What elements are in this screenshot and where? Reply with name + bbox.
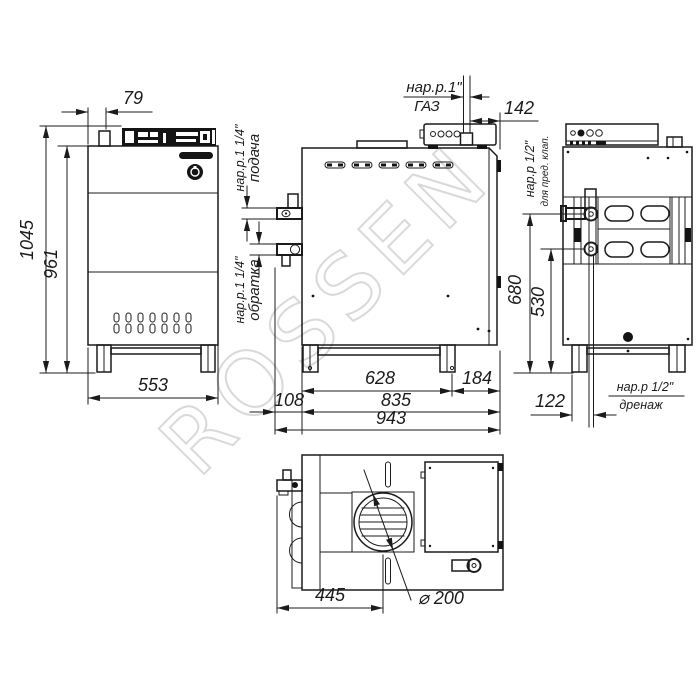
dim-supply-connection: нар.р.1 1/4" подача — [233, 124, 277, 241]
gas-thread-label: нар.р.1" — [406, 79, 462, 96]
front-top-tab — [99, 131, 110, 146]
dim-200-label: ⌀ 200 — [418, 588, 464, 608]
back-oval-cutout — [641, 206, 669, 221]
back-drain-pipe — [585, 243, 598, 428]
valve-thread-label: нар.р 1/2" — [523, 140, 537, 197]
side-rear-hinge-top — [497, 160, 501, 172]
top-slot-upper — [386, 462, 391, 487]
dim-961-label: 961 — [41, 249, 61, 279]
valve-note-label: для пред. клап. — [540, 136, 551, 207]
top-left-pipes — [277, 470, 302, 588]
dim-680-label: 680 — [505, 275, 525, 305]
back-control-panel — [566, 124, 658, 145]
drain-label: дренаж — [619, 398, 664, 412]
back-top-bracket — [667, 137, 682, 147]
dim-122-label: 122 — [535, 391, 565, 411]
back-safety-valve-pipe — [561, 189, 598, 221]
top-view: 445 ⌀ 200 — [277, 455, 503, 613]
dim-79-label: 79 — [123, 88, 143, 108]
side-rear-hinge-bottom — [497, 276, 501, 288]
dim-835-label: 835 — [381, 390, 412, 410]
dim-1045-label: 1045 — [17, 219, 37, 260]
dim-530-label: 530 — [528, 287, 548, 317]
back-view: нар.р 1/2" для пред. клап. 680 530 122 н… — [505, 124, 692, 427]
front-grille — [179, 152, 213, 159]
front-burner-knob — [187, 164, 203, 180]
dim-flue-offset: 445 — [277, 496, 383, 613]
dim-553-label: 553 — [138, 375, 168, 395]
side-gas-pipe — [461, 76, 473, 145]
side-gas-valve-box — [420, 124, 496, 149]
dim-heights: 1045 961 — [17, 126, 121, 373]
supply-thread-label: нар.р.1 1/4" — [233, 124, 247, 191]
back-oval-cutout — [605, 242, 633, 257]
back-body — [563, 147, 692, 345]
front-view: 79 1045 961 553 — [17, 88, 218, 404]
back-drain-plug — [623, 332, 633, 342]
drain-thread-label: нар.р 1/2" — [617, 380, 674, 394]
supply-label: подача — [246, 134, 263, 182]
dim-108-label: 108 — [274, 390, 304, 410]
back-oval-cutout — [641, 242, 669, 257]
drawing-svg: ROSSEN — [0, 0, 700, 700]
dim-943-label: 943 — [376, 408, 406, 428]
front-control-panel — [122, 128, 216, 146]
gas-label: ГАЗ — [414, 98, 440, 115]
back-oval-cutout — [605, 206, 633, 221]
side-top-plate — [357, 141, 407, 148]
dim-drain-offset: 122 нар.р 1/2" дренаж — [531, 375, 684, 421]
return-thread-label: нар.р.1 1/4" — [233, 256, 247, 323]
top-control-box — [421, 462, 503, 552]
front-vent-slots — [114, 313, 191, 333]
top-rear-pipe — [452, 559, 481, 572]
dim-184-label: 184 — [462, 368, 492, 388]
label-safety-valve: нар.р 1/2" для пред. клап. — [523, 136, 551, 207]
dim-445-label: 445 — [315, 585, 346, 605]
dim-142-label: 142 — [504, 98, 534, 118]
top-slot-lower — [386, 558, 391, 584]
boiler-technical-drawing: ROSSEN — [0, 0, 700, 700]
dim-628-label: 628 — [365, 368, 395, 388]
side-supply-pipe — [277, 194, 302, 219]
return-label: обратка — [246, 259, 263, 320]
